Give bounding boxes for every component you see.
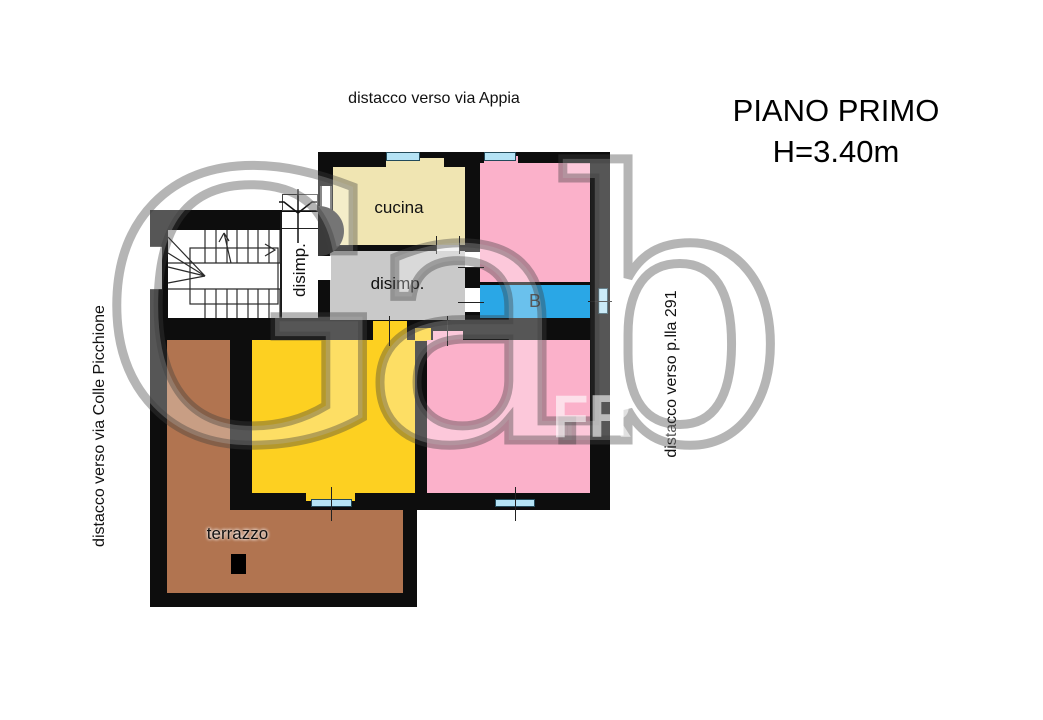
label-corridor-disimp: disimp. xyxy=(290,220,310,320)
room-bedroom-north xyxy=(480,163,590,282)
window-bedroom-north-top xyxy=(484,152,516,161)
annotation-top: distacco verso via Appia xyxy=(284,90,584,108)
label-terrace: terrazzo xyxy=(175,524,300,544)
door-hall-yellow xyxy=(373,321,407,341)
label-cucina: cucina xyxy=(333,198,465,218)
terrace-pillar xyxy=(231,554,246,574)
room-balcony xyxy=(167,340,230,510)
room-terrace xyxy=(167,510,403,593)
tick-cucina-door-right xyxy=(459,236,460,254)
plan-title-line1: PIANO PRIMO xyxy=(700,90,972,131)
tick-bedroom-south-window xyxy=(515,487,516,521)
label-hall-disimp: disimp. xyxy=(330,274,465,294)
tick-cucina-door-left xyxy=(436,236,437,254)
annotation-right: distacco verso p.lla 291 xyxy=(663,274,681,474)
door-hall-bathroom xyxy=(465,288,480,312)
tick-yellow-window xyxy=(331,487,332,521)
room-yellow xyxy=(252,340,415,493)
plan-title: PIANO PRIMO H=3.40m xyxy=(700,90,972,172)
door-hall-bedroom-south xyxy=(433,331,463,341)
tick-hall-yellow-door xyxy=(389,316,390,346)
door-hall-bedroom-north xyxy=(465,252,480,267)
tick-bathroom-window xyxy=(588,301,612,302)
label-bathroom: B xyxy=(480,291,590,312)
plan-title-line2: H=3.40m xyxy=(700,131,972,172)
tick-hall-bedroom-door xyxy=(458,267,484,268)
floor-plan-page: distacco verso via Appia PIANO PRIMO H=3… xyxy=(0,0,1043,720)
tick-hall-bedroom-south-door xyxy=(447,316,448,346)
annotation-left: distacco verso via Colle Picchione xyxy=(91,266,109,586)
room-bedroom-south xyxy=(427,340,590,493)
window-cucina-top xyxy=(386,152,420,161)
